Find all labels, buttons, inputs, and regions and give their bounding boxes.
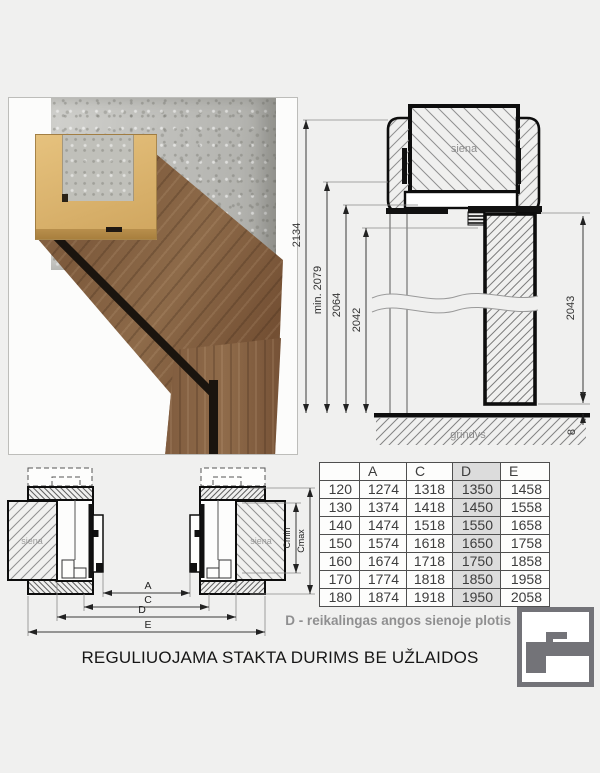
- mdf-cross-section: [35, 134, 157, 240]
- floor-label: grindys: [450, 429, 486, 441]
- manufacturer-logo: [517, 607, 594, 687]
- dim-e-label: E: [144, 619, 151, 631]
- value-cell: 1550: [453, 517, 501, 535]
- value-cell: 1918: [407, 589, 453, 607]
- value-cell: 1958: [501, 571, 550, 589]
- value-cell: 1650: [453, 535, 501, 553]
- row-header-cell: 130: [320, 499, 360, 517]
- value-cell: 1374: [360, 499, 407, 517]
- row-header-cell: 120: [320, 481, 360, 499]
- column-header: E: [501, 463, 550, 481]
- value-cell: 1718: [407, 553, 453, 571]
- value-cell: 1418: [407, 499, 453, 517]
- logo-hook-stem: [546, 632, 553, 644]
- value-cell: 1450: [453, 499, 501, 517]
- table-row: 1201274131813501458: [320, 481, 550, 499]
- value-cell: 1874: [360, 589, 407, 607]
- value-cell: 1474: [360, 517, 407, 535]
- table-header-row: ACDE: [320, 463, 550, 481]
- corner-cell: [320, 463, 360, 481]
- mdf-wall-slot: [62, 135, 134, 201]
- dim-cmax-label: Cmax: [296, 529, 306, 553]
- value-cell: 1818: [407, 571, 453, 589]
- architrave-bottom-left: [386, 208, 448, 214]
- page-title: REGULIUOJAMA STAKTA DURIMS BE UŽLAIDOS: [30, 648, 530, 668]
- frame-elevation-lines: [390, 214, 407, 413]
- dim-door-height: 2043: [565, 296, 577, 320]
- value-cell: 1318: [407, 481, 453, 499]
- frame-corner-photo: [8, 97, 298, 455]
- frame-head-profile: [405, 192, 517, 208]
- value-cell: 1518: [407, 517, 453, 535]
- value-cell: 1274: [360, 481, 407, 499]
- value-cell: 1850: [453, 571, 501, 589]
- value-cell: 1350: [453, 481, 501, 499]
- dim-min-height: min. 2079: [312, 266, 324, 314]
- head-seal: [468, 212, 485, 225]
- wall-label-right: siena: [250, 536, 272, 546]
- right-jamb-section: [190, 468, 285, 594]
- wall-label: siena: [451, 143, 478, 155]
- table-row: 1801874191819502058: [320, 589, 550, 607]
- column-header: C: [407, 463, 453, 481]
- table-row: 1301374141814501558: [320, 499, 550, 517]
- dim-frame-height: 2064: [331, 293, 343, 317]
- value-cell: 1558: [501, 499, 550, 517]
- column-header: D: [453, 463, 501, 481]
- dim-a-label: A: [144, 580, 151, 592]
- value-cell: 1858: [501, 553, 550, 571]
- vertical-section-drawing: grindys siena 2134 min. 2079 2064 2042 2…: [292, 92, 600, 464]
- row-header-cell: 170: [320, 571, 360, 589]
- dimensions-table: ACDE120127413181350145813013741418145015…: [319, 462, 550, 607]
- value-cell: 1774: [360, 571, 407, 589]
- casing-clamp-left: [402, 148, 407, 184]
- left-jamb-section: [8, 468, 103, 594]
- value-cell: 1674: [360, 553, 407, 571]
- value-cell: 1458: [501, 481, 550, 499]
- logo-block: [526, 642, 546, 673]
- dim-opening-height: 2042: [351, 308, 363, 332]
- table-row: 1401474151815501658: [320, 517, 550, 535]
- row-header-cell: 150: [320, 535, 360, 553]
- row-header-cell: 180: [320, 589, 360, 607]
- column-header: A: [360, 463, 407, 481]
- casing-clamp-right: [516, 148, 521, 184]
- dim-d-label: D: [138, 604, 146, 616]
- catalog-page: grindys siena 2134 min. 2079 2064 2042 2…: [0, 0, 600, 773]
- table-row: 1701774181818501958: [320, 571, 550, 589]
- dim-total-height: 2134: [292, 223, 303, 247]
- mdf-seal-slot: [106, 227, 122, 232]
- value-cell: 1574: [360, 535, 407, 553]
- value-cell: 1658: [501, 517, 550, 535]
- row-header-cell: 140: [320, 517, 360, 535]
- value-cell: 2058: [501, 589, 550, 607]
- floor-line: [374, 413, 590, 418]
- seal-groove-vertical: [209, 380, 218, 455]
- value-cell: 1750: [453, 553, 501, 571]
- mdf-bottom-lip: [36, 229, 156, 239]
- wall-label-left: siena: [21, 536, 43, 546]
- table-row: 1601674171817501858: [320, 553, 550, 571]
- mdf-notch: [62, 194, 68, 202]
- value-cell: 1950: [453, 589, 501, 607]
- dim-cmin-label: Cmin: [282, 527, 292, 548]
- dimension-note: D - reikalingas angos sienoje plotis: [180, 613, 511, 628]
- value-cell: 1758: [501, 535, 550, 553]
- row-header-cell: 160: [320, 553, 360, 571]
- dim-floor-gap: 8: [566, 429, 578, 435]
- table-row: 1501574161816501758: [320, 535, 550, 553]
- value-cell: 1618: [407, 535, 453, 553]
